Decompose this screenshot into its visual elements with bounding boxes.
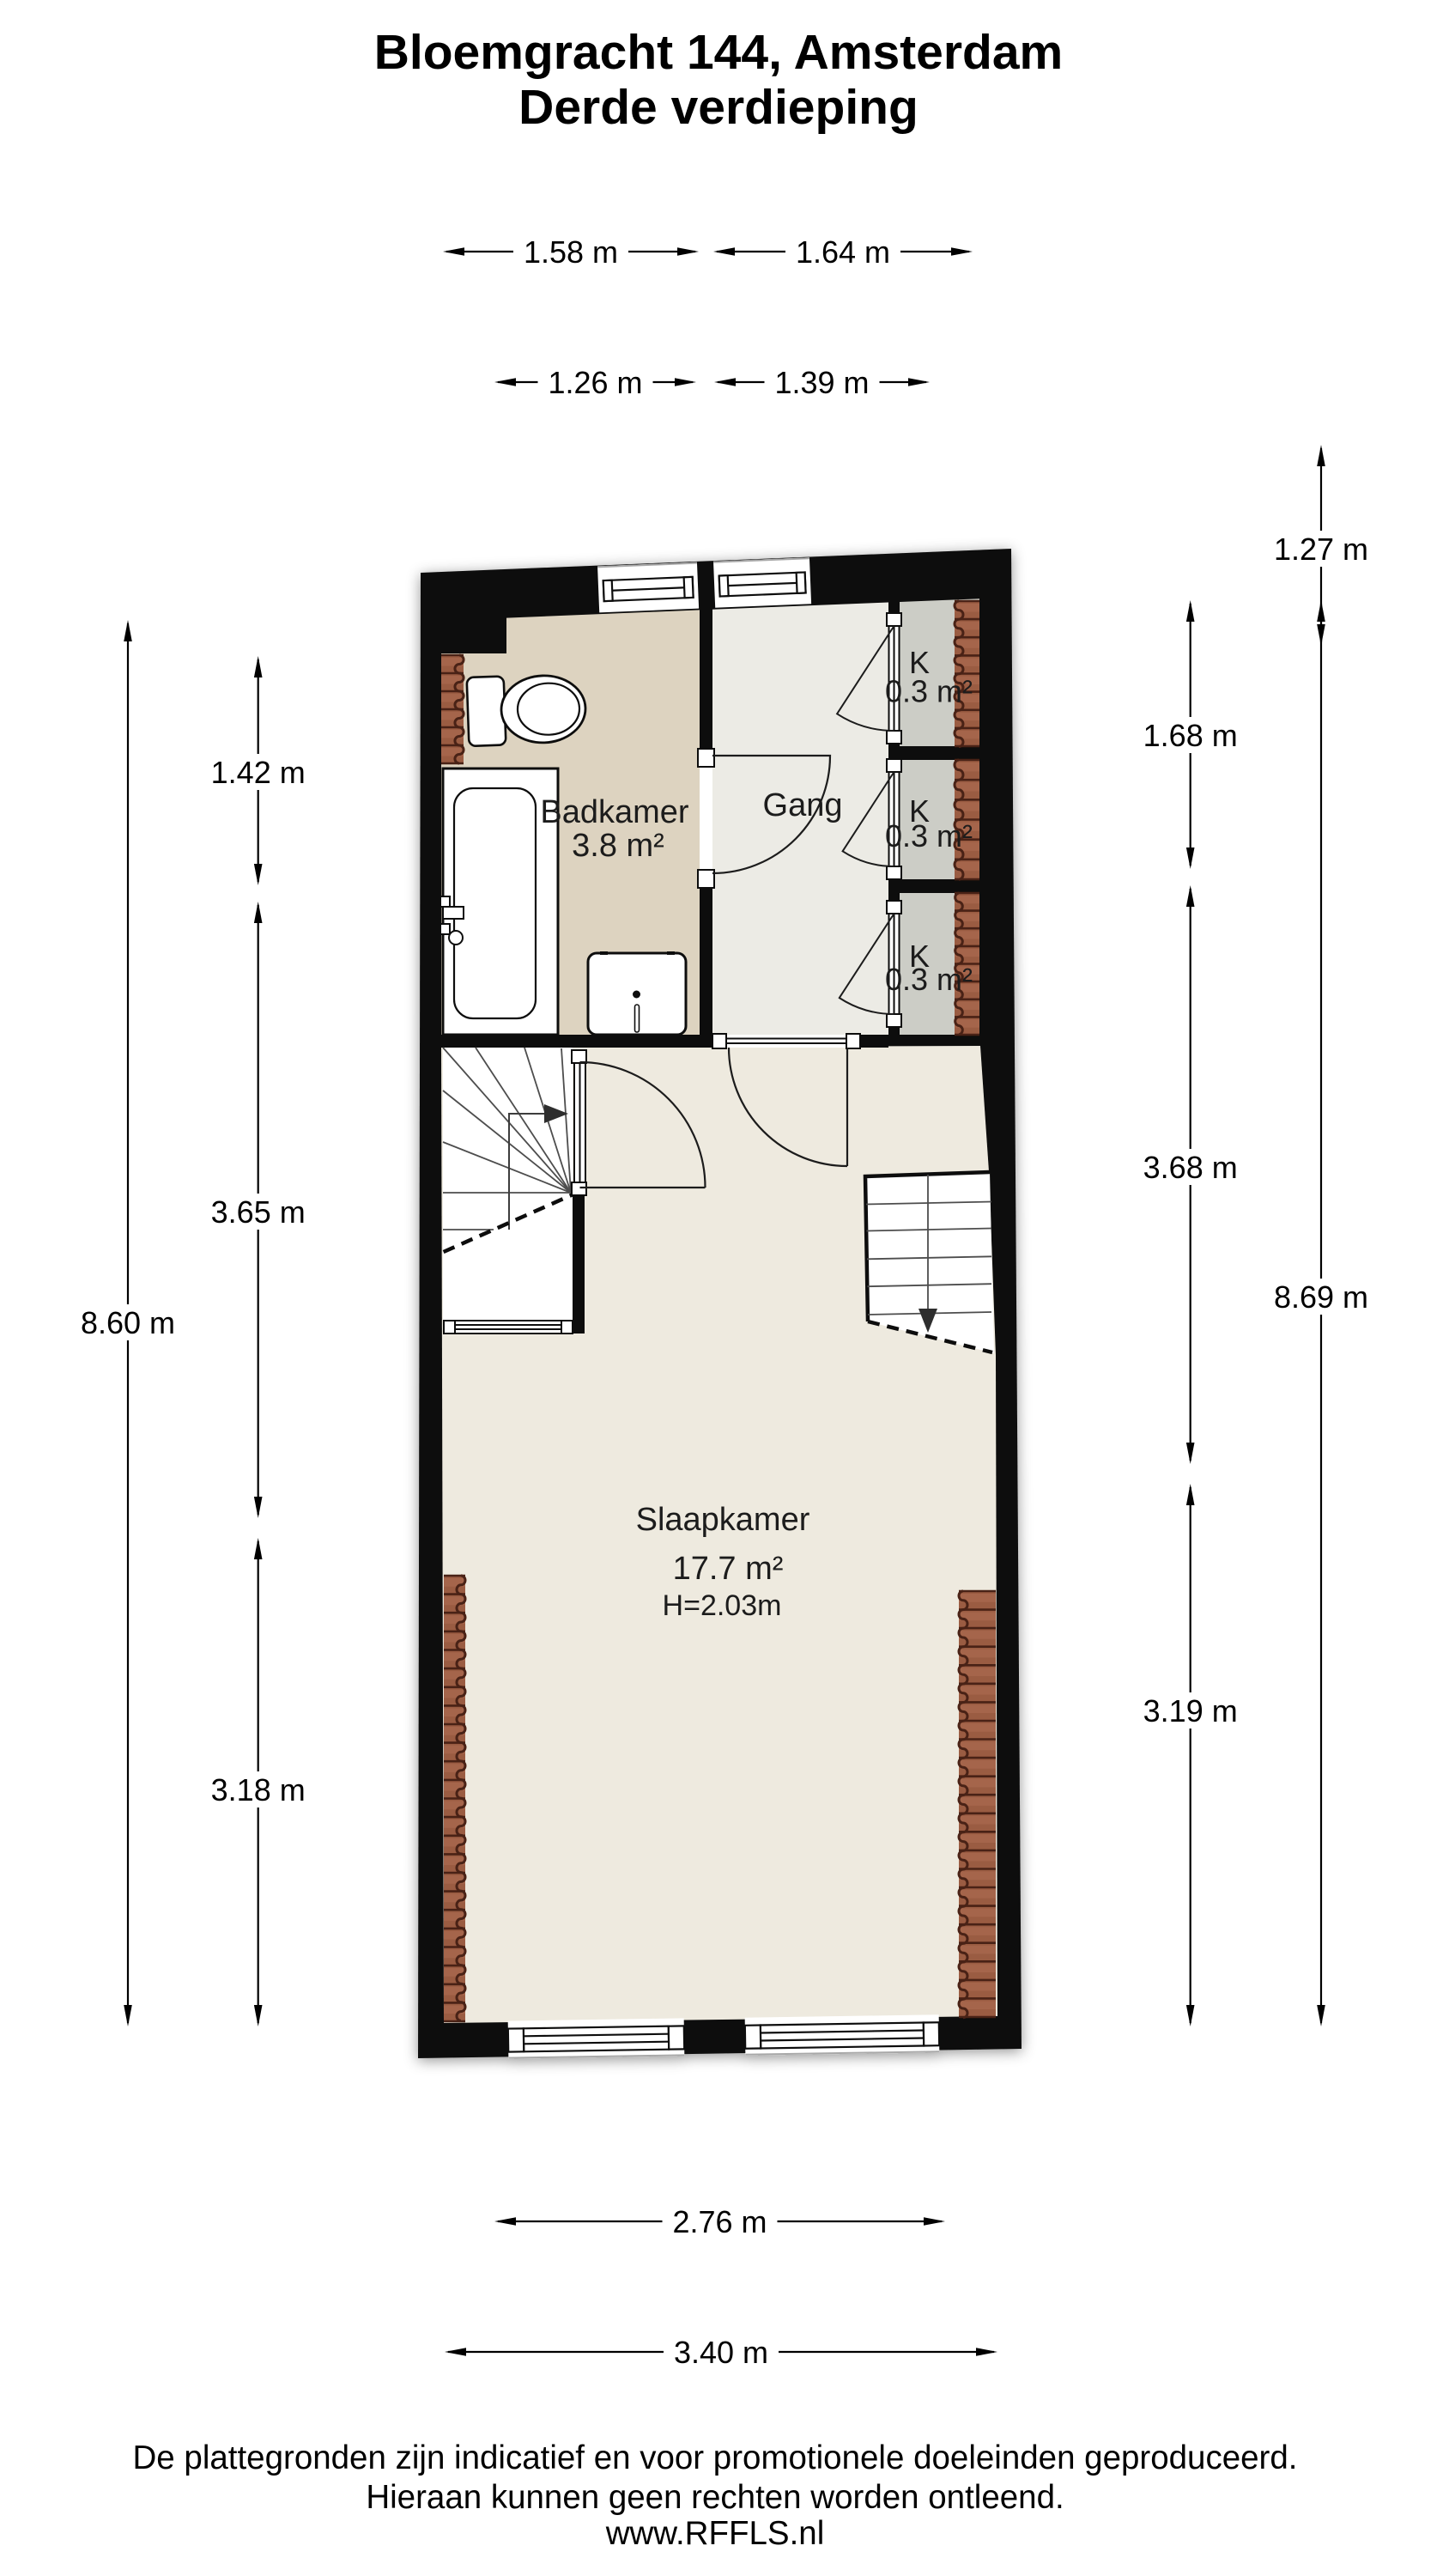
svg-text:De plattegronden zijn indicati: De plattegronden zijn indicatief en voor… xyxy=(133,2439,1298,2476)
svg-text:3.19 m: 3.19 m xyxy=(1143,1693,1238,1728)
svg-text:8.69 m: 8.69 m xyxy=(1274,1279,1368,1315)
svg-text:0.3 m²: 0.3 m² xyxy=(885,818,973,854)
svg-text:3.68 m: 3.68 m xyxy=(1143,1150,1238,1185)
svg-text:8.60 m: 8.60 m xyxy=(81,1305,175,1340)
svg-text:1.39 m: 1.39 m xyxy=(774,365,869,400)
svg-text:3.65 m: 3.65 m xyxy=(211,1194,306,1230)
svg-text:1.42 m: 1.42 m xyxy=(211,755,306,790)
svg-text:Bloemgracht 144, Amsterdam: Bloemgracht 144, Amsterdam xyxy=(374,25,1064,80)
svg-text:Hieraan kunnen geen rechten wo: Hieraan kunnen geen rechten worden ontle… xyxy=(366,2479,1064,2516)
svg-text:1.58 m: 1.58 m xyxy=(524,234,618,270)
svg-text:Gang: Gang xyxy=(763,787,843,823)
svg-text:Slaapkamer: Slaapkamer xyxy=(636,1502,810,1538)
svg-text:Derde verdieping: Derde verdieping xyxy=(518,80,919,135)
svg-text:3.40 m: 3.40 m xyxy=(674,2335,768,2370)
svg-text:2.76 m: 2.76 m xyxy=(672,2204,767,2239)
svg-text:H=2.03m: H=2.03m xyxy=(663,1589,782,1622)
svg-text:1.26 m: 1.26 m xyxy=(548,365,642,400)
svg-text:Badkamer: Badkamer xyxy=(540,794,689,830)
svg-text:3.8 m²: 3.8 m² xyxy=(572,828,664,864)
svg-text:1.27 m: 1.27 m xyxy=(1274,532,1368,567)
svg-text:1.68 m: 1.68 m xyxy=(1143,718,1238,753)
svg-text:0.3 m²: 0.3 m² xyxy=(885,962,973,997)
svg-text:www.RFFLS.nl: www.RFFLS.nl xyxy=(605,2515,825,2552)
svg-text:0.3 m²: 0.3 m² xyxy=(885,674,973,709)
svg-text:3.18 m: 3.18 m xyxy=(211,1772,306,1807)
svg-text:1.64 m: 1.64 m xyxy=(796,234,890,270)
svg-text:17.7 m²: 17.7 m² xyxy=(673,1551,784,1587)
